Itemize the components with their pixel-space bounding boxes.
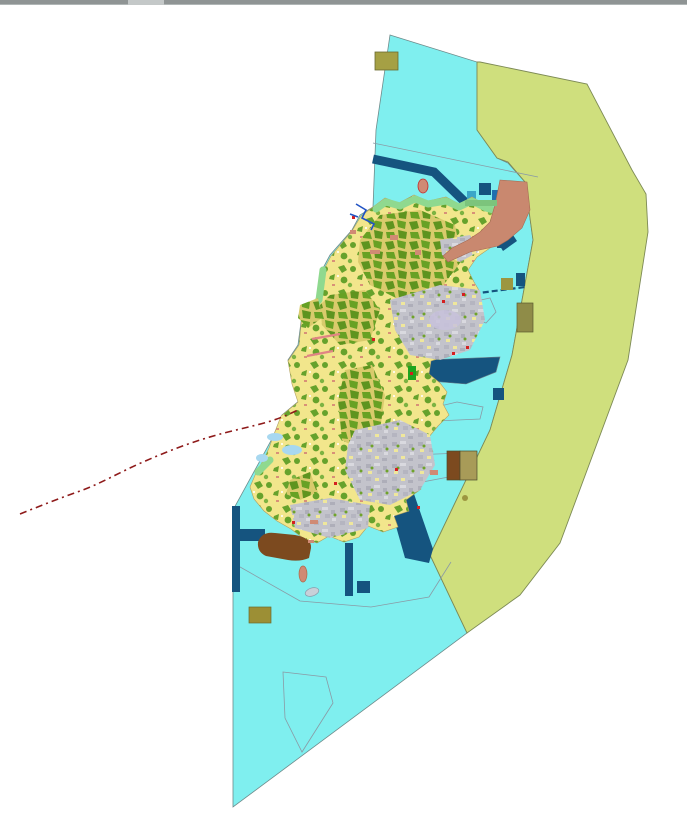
land-use-map[interactable] [0, 5, 687, 821]
parcel-south [249, 607, 271, 623]
parcel-ne-small [501, 278, 513, 290]
harbor-rim [308, 540, 314, 543]
map-viewport[interactable] [0, 5, 687, 821]
harbor-block [493, 388, 504, 400]
buoy-parcel [462, 495, 468, 501]
small-reclamation-islet [418, 179, 428, 193]
split-parcel-west [447, 451, 460, 480]
west-pier-stem [232, 506, 240, 592]
islet-salmon [299, 566, 307, 582]
parcel-east [517, 303, 533, 332]
split-parcel-east [460, 451, 477, 480]
south-quay-bar [345, 543, 353, 596]
ne-block [516, 273, 525, 286]
ne-basin-block [479, 183, 491, 195]
parcel-north [375, 52, 398, 70]
south-block [357, 581, 370, 593]
ne-green-strip [465, 200, 497, 206]
